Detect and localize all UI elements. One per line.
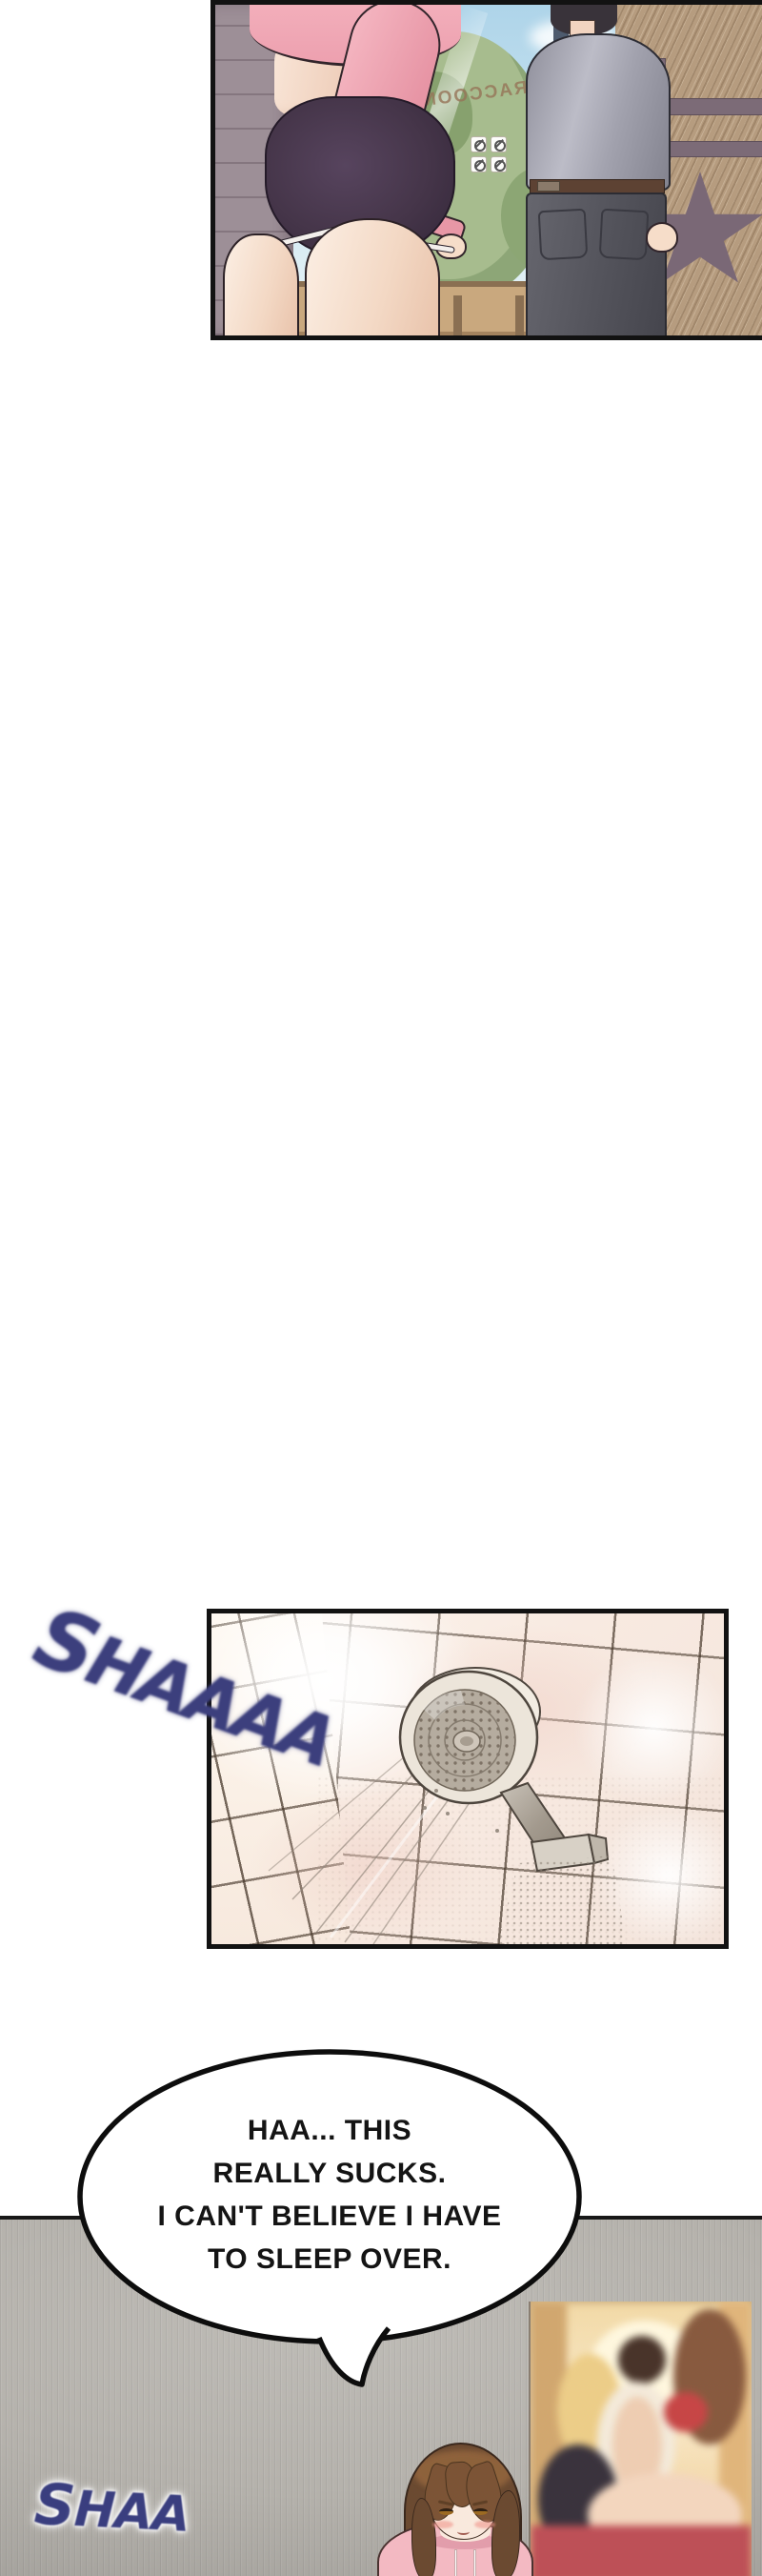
sfx-ambient-sound: SHAA [32,2471,191,2546]
girl-eye [473,2508,488,2515]
pants-back-pocket [538,209,589,261]
pants-back-pocket [599,209,650,261]
hoodie-drawstring [454,2549,457,2576]
no-power-sign-icon [471,156,487,172]
shower-head-art [211,1613,724,1944]
falling-water-mist [497,1856,627,1944]
man-hand [646,222,678,253]
terrace-post [515,295,524,335]
man-belt-buckle [537,181,560,192]
comic-page: RACCOONS [0,0,762,2576]
speech-line: I CAN'T BELIEVE I HAVE [120,2195,539,2238]
woman-right-thigh [305,218,440,338]
girl-eye [439,2508,453,2515]
panel-shower [207,1609,729,1949]
speech-line: REALLY SUCKS. [120,2152,539,2195]
no-smoking-sign-icon [471,136,487,152]
girl-blush [432,2521,453,2528]
door-sign-grid [471,136,510,175]
no-scooter-sign-icon [491,156,507,172]
speech-bubble-text: HAA... THIS REALLY SUCKS. I CAN'T BELIEV… [120,2109,539,2281]
no-food-sign-icon [491,136,507,152]
girl-blush [474,2521,495,2528]
speech-line: TO SLEEP OVER. [120,2238,539,2281]
terrace-post [453,295,462,335]
speech-line: HAA... THIS [120,2109,539,2152]
woman-left-thigh [223,233,299,338]
hoodie-drawstring [473,2549,476,2576]
man-gray-shirt [526,33,671,192]
girl-mouth [457,2528,470,2535]
panel-street: RACCOONS [211,0,762,340]
